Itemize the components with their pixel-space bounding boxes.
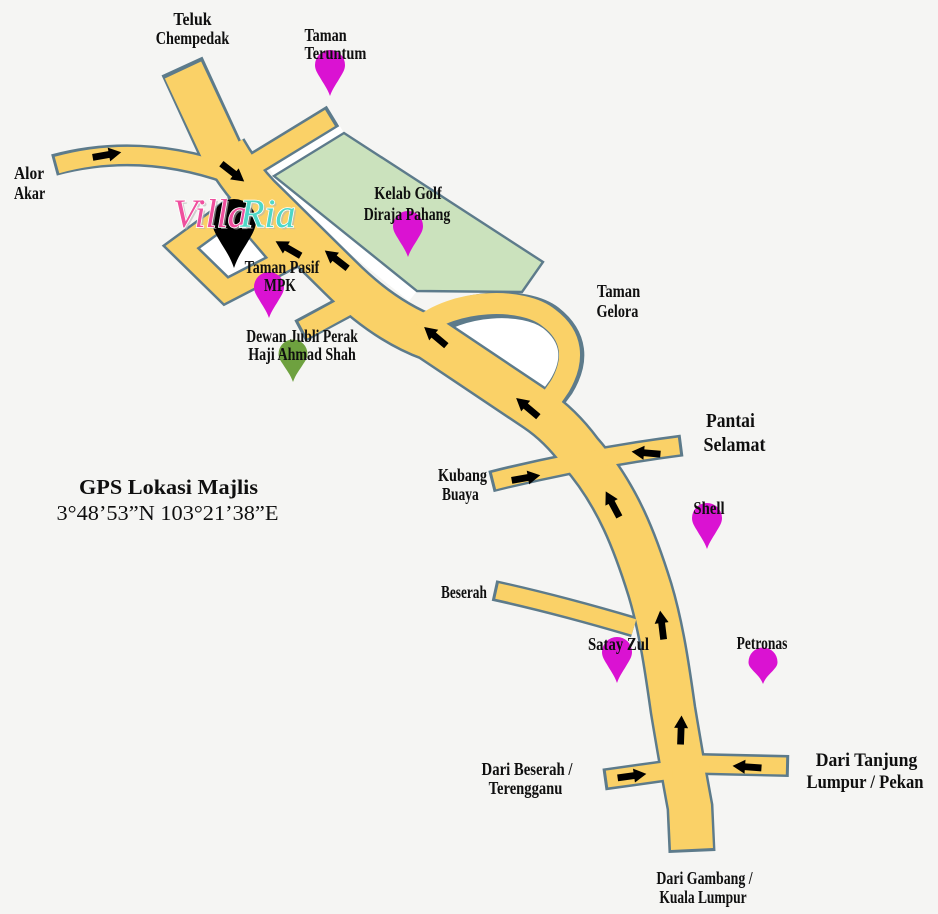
svg-text:Petronas: Petronas	[737, 634, 788, 653]
svg-text:MPK: MPK	[264, 276, 296, 295]
svg-text:Dewan Jubli Perak: Dewan Jubli Perak	[246, 327, 358, 346]
svg-text:Satay Zul: Satay Zul	[588, 634, 649, 655]
svg-text:Buaya: Buaya	[442, 485, 479, 504]
svg-text:Selamat: Selamat	[704, 434, 767, 456]
svg-text:Dari Gambang /: Dari Gambang /	[656, 869, 753, 888]
svg-text:Haji Ahmad Shah: Haji Ahmad Shah	[248, 346, 356, 365]
svg-text:Kuala Lumpur: Kuala Lumpur	[659, 888, 746, 907]
svg-text:Lumpur / Pekan: Lumpur / Pekan	[807, 771, 924, 792]
svg-text:3°48’53”N 103°21’38”E: 3°48’53”N 103°21’38”E	[57, 501, 279, 525]
svg-text:Dari Beserah /: Dari Beserah /	[482, 759, 573, 780]
svg-text:Beserah: Beserah	[441, 583, 487, 602]
svg-text:Pantai: Pantai	[706, 410, 755, 432]
svg-text:Gelora: Gelora	[597, 301, 639, 321]
svg-text:Alor: Alor	[14, 163, 45, 183]
svg-text:Ria: Ria	[239, 191, 296, 236]
svg-text:GPS Lokasi Majlis: GPS Lokasi Majlis	[79, 475, 258, 499]
svg-text:Chempedak: Chempedak	[156, 28, 229, 48]
svg-text:Teruntum: Teruntum	[305, 42, 367, 63]
svg-text:Dari Tanjung: Dari Tanjung	[816, 749, 918, 770]
svg-text:Taman Pasif: Taman Pasif	[245, 259, 320, 278]
svg-text:Kubang: Kubang	[438, 465, 487, 485]
svg-text:Villa: Villa	[173, 191, 248, 236]
svg-text:Diraja Pahang: Diraja Pahang	[364, 205, 451, 224]
svg-text:Shell: Shell	[693, 498, 725, 519]
svg-text:Terengganu: Terengganu	[489, 778, 563, 799]
svg-text:Kelab Golf: Kelab Golf	[374, 182, 442, 203]
svg-text:Taman: Taman	[597, 281, 640, 302]
svg-text:Teluk: Teluk	[173, 9, 212, 29]
svg-text:Akar: Akar	[14, 185, 45, 204]
